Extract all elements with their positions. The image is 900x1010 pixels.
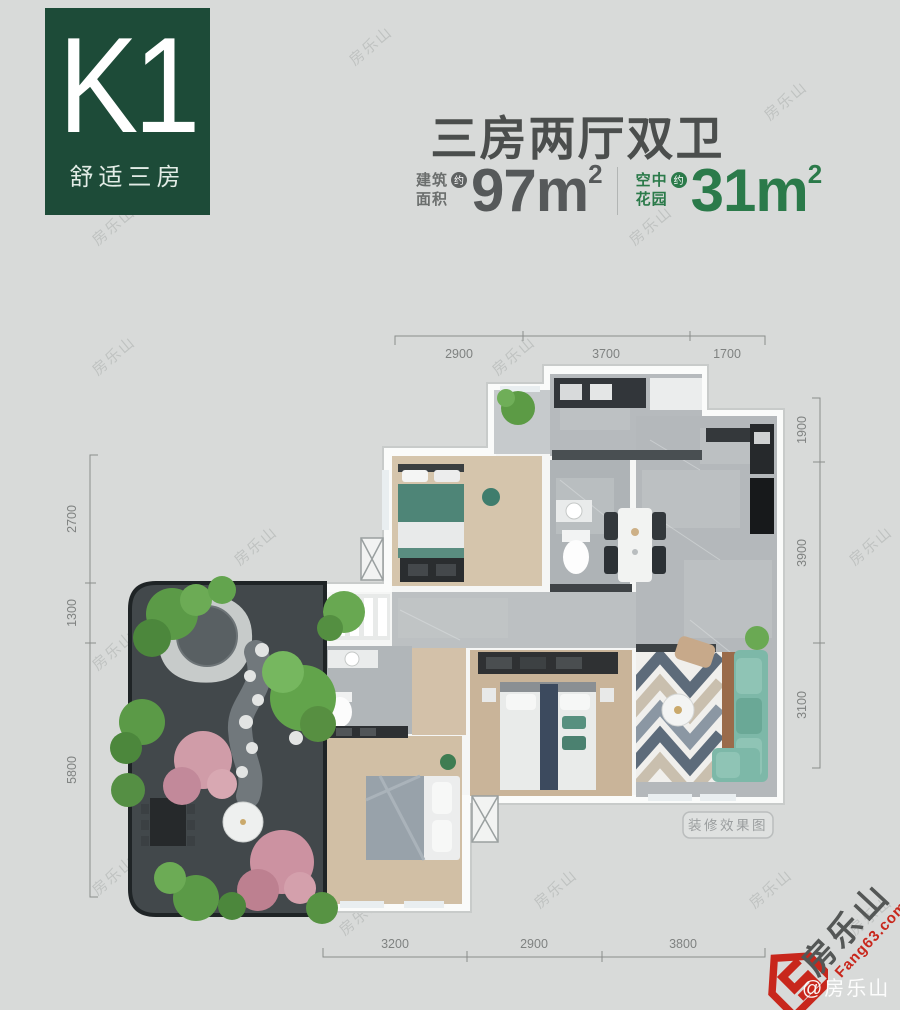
dim-left-2: 1300	[65, 599, 79, 627]
dim-right-2: 3900	[795, 539, 809, 567]
dim-top-1: 2900	[445, 347, 473, 361]
dim-bottom-2: 2900	[520, 937, 548, 951]
render-label-text: 装修效果图	[688, 818, 768, 833]
dim-left-1: 2700	[65, 505, 79, 533]
render-label: 装修效果图	[683, 812, 773, 838]
page: 房乐山房乐山房乐山房乐山房乐山房乐山房乐山房乐山房乐山房乐山房乐山房乐山房乐山房…	[0, 0, 900, 1010]
sky-garden	[110, 576, 365, 924]
dim-top-3: 1700	[713, 347, 741, 361]
corridor-floor	[412, 648, 466, 735]
dim-bottom-1: 3200	[381, 937, 409, 951]
dim-right-1: 1900	[795, 416, 809, 444]
dim-left-3: 5800	[65, 756, 79, 784]
floor-plan: 2900 3700 1700 1900 3900 3100 2700 1300 …	[0, 0, 900, 1010]
dim-top-2: 3700	[592, 347, 620, 361]
dim-bottom-3: 3800	[669, 937, 697, 951]
living-room	[630, 626, 769, 794]
dim-right-3: 3100	[795, 691, 809, 719]
